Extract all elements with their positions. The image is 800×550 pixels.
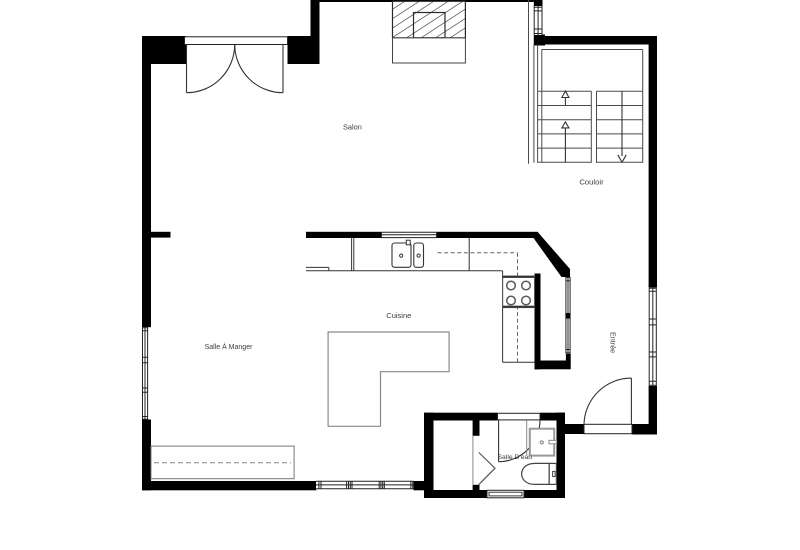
svg-text:Couloir: Couloir — [579, 178, 604, 187]
svg-text:Salle À Manger: Salle À Manger — [205, 342, 254, 351]
svg-text:Cuisine: Cuisine — [386, 311, 411, 320]
svg-text:Entrée: Entrée — [608, 332, 617, 353]
svg-text:Salon: Salon — [343, 123, 362, 132]
svg-text:Salle D'eau: Salle D'eau — [498, 454, 533, 461]
